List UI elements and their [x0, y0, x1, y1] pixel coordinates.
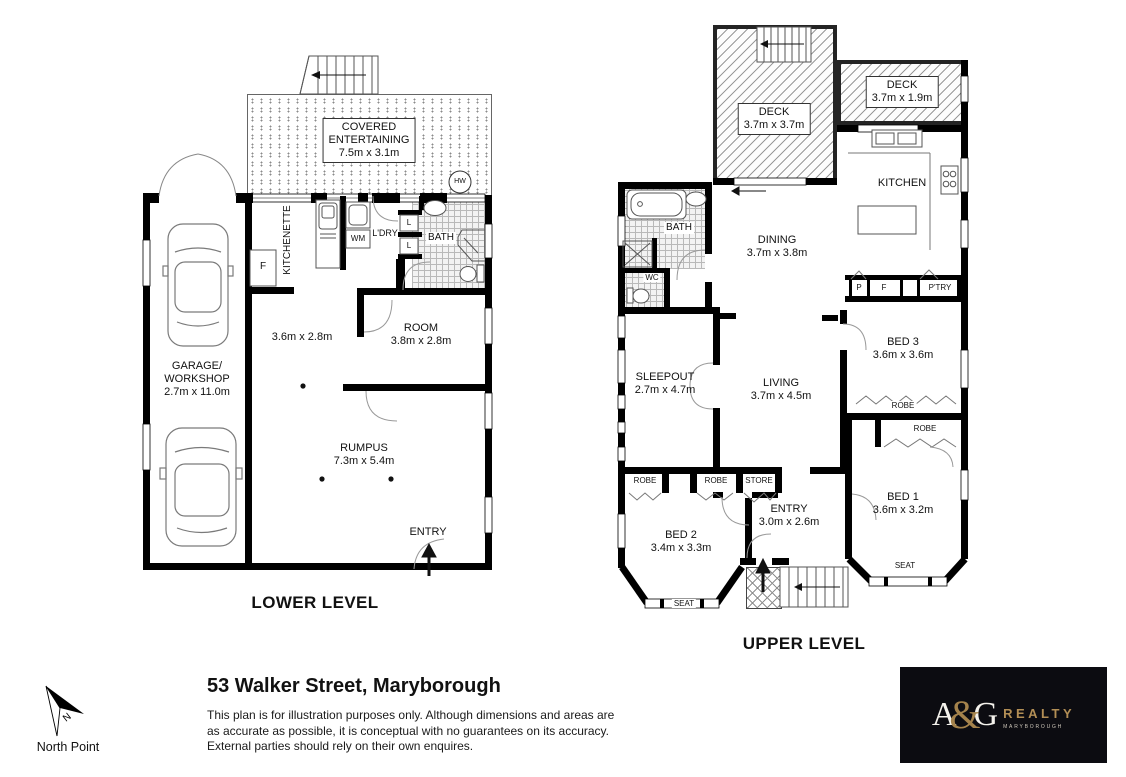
- laundry-label: L'DRY: [372, 228, 398, 239]
- sleepout-label: SLEEPOUT 2.7m x 4.7m: [635, 371, 696, 397]
- north-point-icon: N: [46, 686, 84, 736]
- logo-ampersand: &: [949, 695, 980, 735]
- bed1-seat-label: SEAT: [895, 561, 915, 570]
- store-label: STORE: [745, 476, 772, 485]
- dining-label: DINING 3.7m x 3.8m: [747, 234, 808, 260]
- lower-room2-label: ROOM 3.8m x 2.8m: [391, 322, 452, 348]
- lower-bath-label: BATH: [426, 232, 456, 244]
- bed2-seat-label: SEAT: [672, 599, 696, 608]
- lower-external-stairs: [300, 56, 378, 94]
- disclaimer-text: This plan is for illustration purposes o…: [207, 708, 614, 755]
- deck-large-label: DECK 3.7m x 3.7m: [738, 103, 811, 135]
- bed2-bay-window: [622, 567, 742, 603]
- living-label: LIVING 3.7m x 4.5m: [751, 377, 812, 403]
- hot-water-label: HW: [454, 178, 466, 186]
- logo-realty-text: REALTY: [1003, 706, 1075, 721]
- bed3-label: BED 3 3.6m x 3.6m: [873, 336, 934, 362]
- wc-label: WC: [643, 273, 660, 282]
- north-point-label: North Point: [37, 740, 100, 755]
- pantry-label: P'TRY: [929, 283, 952, 292]
- upper-entry-label: ENTRY 3.0m x 2.6m: [759, 503, 820, 529]
- address-title: 53 Walker Street, Maryborough: [207, 675, 501, 698]
- upper-level-title: UPPER LEVEL: [743, 634, 865, 654]
- kitchenette-label: KITCHENETTE: [282, 205, 294, 274]
- upper-deck-stairs: [757, 27, 811, 62]
- robe-label: ROBE: [705, 476, 728, 485]
- upper-bath-label: BATH: [664, 222, 694, 234]
- fridge-label: F: [260, 261, 266, 273]
- bed1-robe-label: ROBE: [914, 424, 937, 433]
- linen-label: L: [407, 241, 411, 250]
- pantry-f-label: F: [882, 283, 887, 292]
- upper-entry-arrow: [756, 559, 770, 592]
- bed1-label: BED 1 3.6m x 3.2m: [873, 491, 934, 517]
- deck-slider-arrow: [732, 187, 766, 195]
- garage-label: GARAGE/ WORKSHOP 2.7m x 11.0m: [164, 360, 230, 399]
- garage-door-arcs: [159, 154, 236, 196]
- linen-label: L: [407, 218, 411, 227]
- robe-label: ROBE: [634, 476, 657, 485]
- kitchenette-sink-icon: [316, 200, 340, 268]
- car-icon: [160, 428, 242, 546]
- logo-location-text: MARYBOROUGH: [1003, 724, 1075, 730]
- kitchen-fixtures: [848, 130, 958, 250]
- lower-entry-label: ENTRY: [409, 526, 446, 539]
- car-icon: [163, 224, 233, 346]
- entry-arrow: [422, 544, 436, 576]
- agency-logo: A&G REALTY MARYBOROUGH: [900, 667, 1107, 763]
- lower-level-title: LOWER LEVEL: [251, 593, 378, 613]
- north-letter: N: [61, 711, 73, 724]
- bed2-label: BED 2 3.4m x 3.3m: [651, 529, 712, 555]
- rumpus-label: RUMPUS 7.3m x 5.4m: [334, 442, 395, 468]
- upper-entry-stairs: [780, 567, 848, 607]
- kitchen-label: KITCHEN: [878, 177, 926, 190]
- washing-machine-label: WM: [351, 234, 365, 243]
- covered-entertaining-label: COVERED ENTERTAINING 7.5m x 3.1m: [323, 118, 416, 163]
- floor-plan-canvas: N COVERED ENTERTAINING 7.5m x 3.1m HW KI…: [0, 0, 1126, 777]
- bed1-seat-window: [869, 577, 947, 586]
- lower-room1-dims: 3.6m x 2.8m: [272, 331, 333, 344]
- deck-small-label: DECK 3.7m x 1.9m: [866, 76, 939, 108]
- pantry-p-label: P: [856, 283, 861, 292]
- bed3-robe-label: ROBE: [890, 401, 917, 410]
